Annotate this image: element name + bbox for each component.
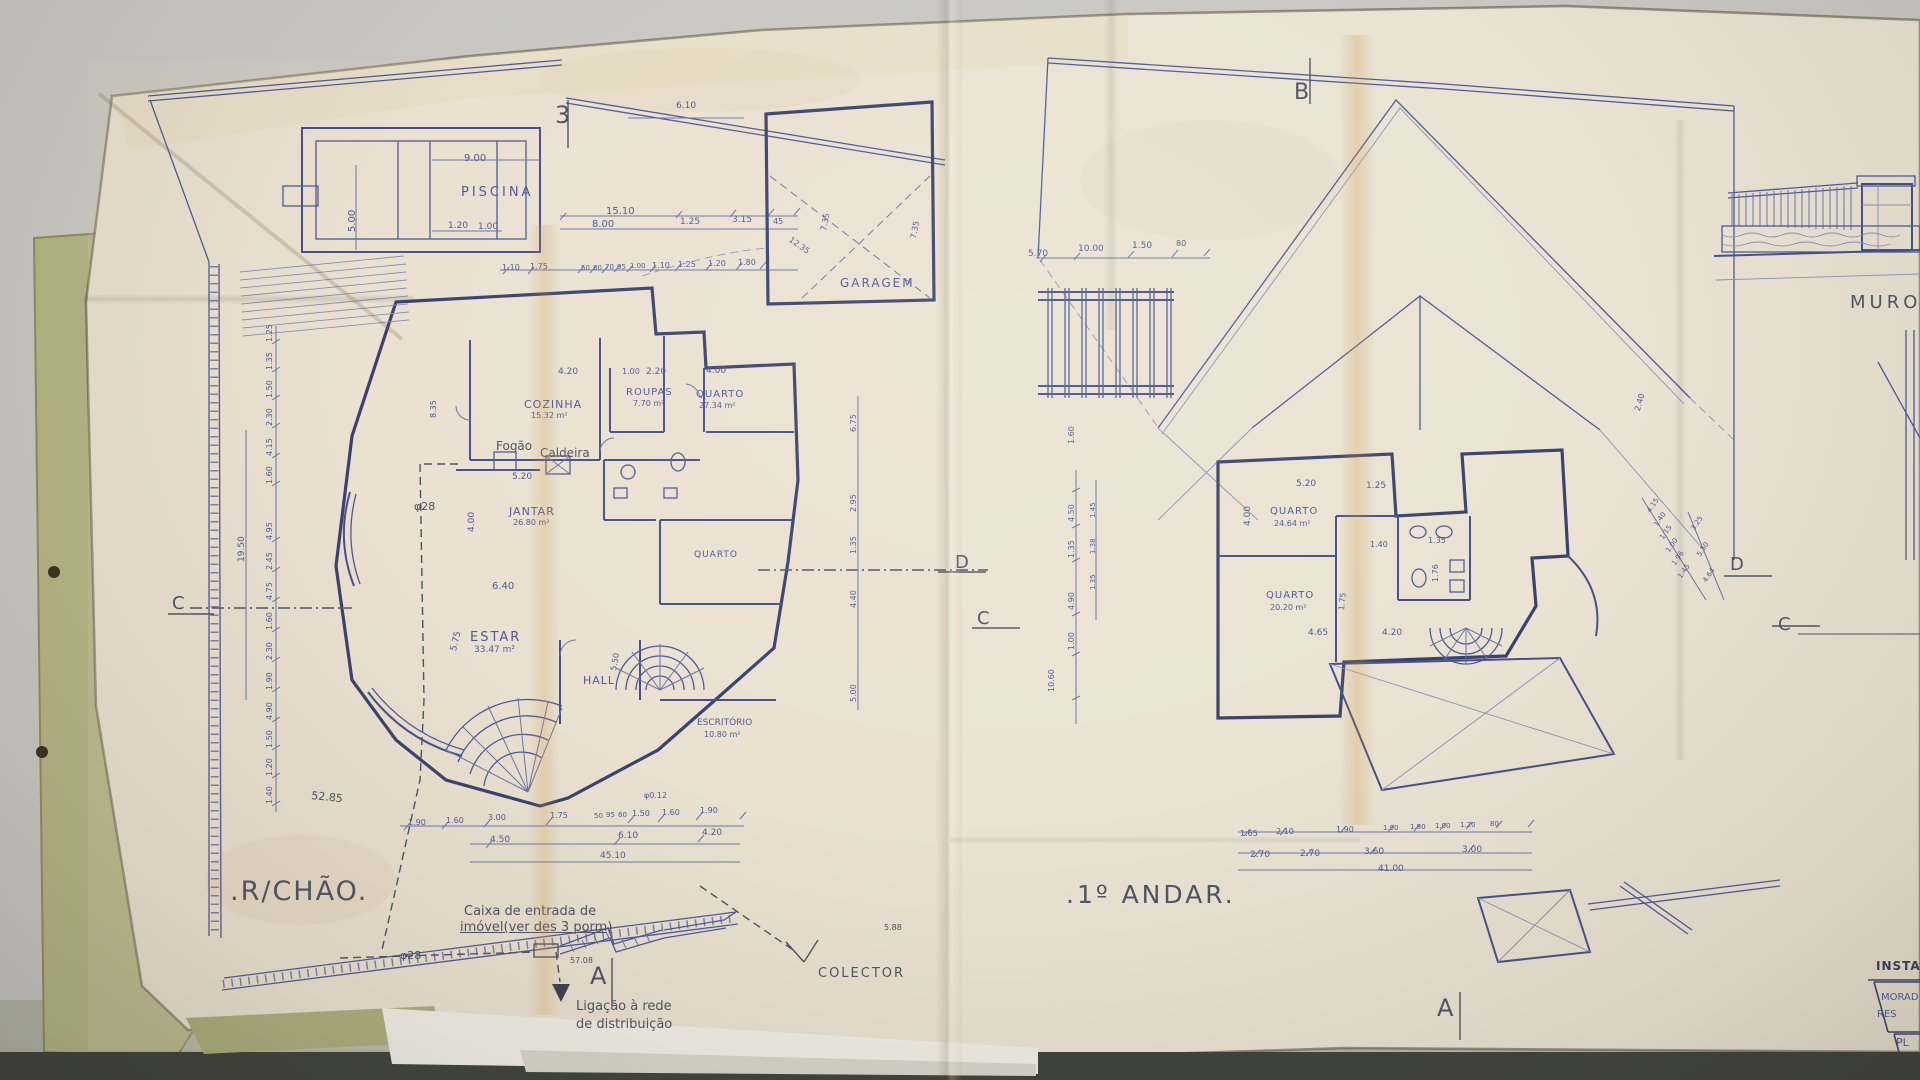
dimension-label: 1.40 [1370, 541, 1388, 549]
dimension-label: 1.00 [1435, 823, 1451, 830]
dimension-label: 1.00 [622, 368, 640, 376]
dimension-label: 60 [618, 812, 627, 819]
room-area: 20.20 m² [1270, 604, 1306, 612]
dimension-label: 4.95 [266, 522, 274, 540]
dimension-label: 1.25 [266, 324, 274, 342]
dimension-label: 1.75 [530, 263, 548, 271]
dimension-label: 1.00 [478, 223, 498, 232]
dimension-label: 2.30 [266, 642, 274, 660]
dimension-label: 1.00 [630, 263, 646, 270]
dimension-label: 80 [593, 265, 602, 272]
piscina-label: PISCINA [461, 186, 533, 199]
room-area: 26.80 m² [513, 519, 549, 527]
dimension-label: 41.00 [1378, 865, 1404, 874]
dimension-label: 4.50 [1068, 504, 1076, 522]
dimension-label: 10.00 [1078, 245, 1104, 254]
phi28-label: φ28 [400, 950, 421, 961]
room-area: 33.47 m² [474, 646, 515, 655]
dimension-label: 7.35 [820, 213, 832, 232]
dimension-label: 80 [1176, 240, 1186, 248]
dimension-label: 1.90 [408, 819, 426, 827]
quarto-label: QUARTO [1266, 591, 1314, 601]
dimension-label: 1.00 [1068, 632, 1076, 650]
colector-label: COLECTOR [818, 967, 905, 980]
dimension-label: 15.10 [606, 207, 635, 217]
dimension-label: 1.35 [1428, 537, 1446, 545]
dimension-label: 95 [606, 812, 615, 819]
section-marker-D: D [955, 554, 969, 572]
dimension-label: 1.45 [1090, 502, 1097, 518]
escritorio-label: ESCRITÓRIO [697, 719, 752, 728]
dimension-label: 1.80 [1410, 824, 1426, 831]
dimension-label: 4.15 [266, 438, 274, 456]
dimension-label: 4.20 [702, 829, 722, 838]
dimension-label: 5.88 [884, 924, 902, 932]
dimension-label: 12.35 [787, 236, 810, 256]
fogao-label: Fogão [496, 440, 532, 452]
titleblock-row3: PL [1896, 1037, 1909, 1048]
garagem-label: GARAGEM [840, 277, 915, 289]
dimension-label: 1.25 [1366, 482, 1386, 491]
estar-label: ESTAR [470, 631, 521, 644]
dimension-label: 95 [617, 264, 626, 271]
dimension-label: 1.35 [266, 352, 274, 370]
room-area: 24.64 m² [1274, 520, 1310, 528]
dimension-label: 1.75 [550, 812, 568, 820]
dimension-label: 3.60 [1364, 848, 1384, 857]
dimension-label: 1.35 [850, 536, 858, 554]
dimension-label: 50 [594, 813, 603, 820]
dimension-label: 4.40 [850, 590, 858, 608]
ligacao-note-line2: de distribuição [576, 1018, 672, 1031]
dimension-label: 10.60 [1048, 669, 1056, 692]
section-marker-A: A [590, 964, 606, 988]
dimension-label: 6.10 [676, 102, 696, 111]
quarto-label: QUARTO [696, 390, 744, 400]
dimension-label: 1.20 [1460, 822, 1476, 829]
phi28-label: φ28 [414, 501, 435, 512]
section-marker-3: 3 [555, 103, 570, 127]
section-marker-B: B [1294, 82, 1309, 104]
dimension-label: 1.76 [1432, 564, 1440, 582]
dimension-label: 1.35 [1068, 540, 1076, 558]
dimension-label: 1.90 [1383, 825, 1399, 832]
dimension-label: 1.50 [266, 380, 274, 398]
room-area: 10.80 m² [704, 731, 740, 739]
dimension-label: 4.20 [558, 368, 578, 377]
dimension-label: 1.90 [266, 672, 274, 690]
dimension-label: 1.10 [502, 264, 520, 272]
dimension-label: 4.50 [490, 836, 510, 845]
dimension-label: 1.20 [266, 758, 274, 776]
dimension-label: 5.00 [850, 684, 858, 702]
section-marker-C: C [172, 595, 185, 613]
dimension-label: 2.20 [646, 368, 666, 377]
dimension-label: 1.10 [652, 262, 670, 270]
dimension-label: 1.50 [266, 730, 274, 748]
caldeira-label: Caldeira [540, 447, 590, 459]
dimension-label: 1.60 [662, 809, 680, 817]
dimension-label: 1.25 [678, 261, 696, 269]
ligacao-note-line1: Ligação à rede [576, 1000, 672, 1013]
dimension-label: 1.65 [1240, 830, 1258, 838]
dimension-label: 1.60 [266, 612, 274, 630]
quarto2-label: QUARTO [694, 551, 738, 560]
section-marker-C: C [1778, 616, 1791, 634]
quarto-label: QUARTO [1270, 507, 1318, 517]
section-marker-A: A [1437, 996, 1453, 1020]
jantar-label: JANTAR [509, 506, 555, 517]
dimension-label: 2.70 [1250, 851, 1270, 860]
section-marker-C: C [977, 610, 990, 628]
dimension-label: 5.50 [1696, 541, 1711, 558]
dimension-label: 19.50 [238, 536, 247, 562]
cozinha-label: COZINHA [524, 399, 582, 410]
dimension-label: 1.60 [266, 466, 274, 484]
dimension-label: 50 [581, 265, 590, 272]
dimension-label: 8.00 [592, 220, 614, 230]
dimension-label: 2.95 [850, 494, 858, 512]
dimension-label: 8.35 [430, 400, 438, 418]
caixa-note-line1: Caixa de entrada de [464, 905, 596, 918]
dimension-label: 4.00 [706, 367, 726, 376]
dimension-label: 2.10 [1276, 828, 1294, 836]
dimension-label: 1.50 [632, 810, 650, 818]
hall-label: HALL [583, 675, 615, 686]
dimension-label: 5.50 [610, 652, 621, 671]
caixa-note-line2: imóvel(ver des 3 porm) [460, 921, 612, 934]
dimension-label: 80 [1490, 821, 1499, 828]
dimension-label: 3.15 [732, 216, 752, 225]
dimension-label: 4.20 [1382, 629, 1402, 638]
dimension-label: 1.60 [446, 817, 464, 825]
dimension-label: 2.45 [266, 552, 274, 570]
dimension-label: 3.00 [1462, 846, 1482, 855]
dimension-label: 2.40 [1634, 393, 1646, 412]
roupas-label: ROUPAS [626, 388, 673, 398]
annotation-layer: .R/CHÃO. .1º ANDAR. 3PISCINA9.005.001.20… [0, 0, 1920, 1080]
dimension-label: 1.80 [738, 259, 756, 267]
dimension-label: 70 [605, 264, 614, 271]
first-floor-title: .1º ANDAR. [1066, 882, 1236, 907]
room-area: 7.70 m² [633, 400, 664, 408]
dimension-label: 6.40 [492, 582, 514, 592]
room-area: 27.34 m² [699, 402, 735, 410]
dimension-label: φ0.12 [644, 792, 667, 800]
muro-label: MURO [1850, 294, 1920, 312]
dimension-label: 1.38 [1090, 538, 1097, 554]
titleblock-row1: MORAD [1881, 993, 1919, 1003]
dimension-label: 52.85 [311, 790, 343, 804]
titleblock-row2: RES [1877, 1010, 1897, 1020]
dimension-label: 5.20 [512, 473, 532, 482]
photo-of-blueprint: { "palette":{"desk":"#c9c8c3","desk_low"… [0, 0, 1920, 1080]
dimension-label: 4.15 [1646, 497, 1661, 514]
dimension-label: 4.65 [1308, 629, 1328, 638]
dimension-label: 1.35 [1090, 574, 1097, 590]
dimension-label: 1.75 [1338, 592, 1348, 611]
dimension-label: 3.00 [488, 814, 506, 822]
dimension-label: 4.00 [468, 512, 477, 532]
dimension-label: 1.50 [1132, 242, 1152, 251]
dimension-label: 5.70 [1028, 250, 1048, 259]
dimension-label: 9.00 [464, 154, 486, 164]
dimension-label: 2.70 [1300, 850, 1320, 859]
dimension-label: 4.90 [1068, 592, 1076, 610]
dimension-label: 6.75 [850, 414, 858, 432]
dimension-label: 3.25 [1690, 515, 1705, 532]
dimension-label: 4.64 [1702, 567, 1717, 584]
dimension-label: 45.10 [600, 852, 626, 861]
ground-floor-title: .R/CHÃO. [230, 878, 368, 905]
dimension-label: 4.90 [266, 702, 274, 720]
section-marker-D: D [1730, 556, 1744, 574]
dimension-label: 2.30 [266, 408, 274, 426]
dimension-label: 5.75 [450, 631, 464, 653]
titleblock-heading: INSTAL [1876, 960, 1920, 972]
dimension-label: 1.20 [448, 222, 468, 231]
dimension-label: 1.60 [1068, 426, 1076, 444]
dimension-label: 5.20 [1296, 480, 1316, 489]
dimension-label: 6.10 [618, 832, 638, 841]
dimension-label: 5.00 [348, 210, 358, 232]
dimension-label: 4.00 [1244, 506, 1253, 526]
room-area: 15.32 m² [531, 412, 567, 420]
dimension-label: 1.20 [708, 260, 726, 268]
dimension-label: 7.35 [910, 220, 921, 239]
dimension-label: 1.90 [1336, 826, 1354, 834]
dimension-label: 4.75 [266, 582, 274, 600]
dimension-label: 1.45 [1677, 563, 1692, 580]
dimension-label: 45 [773, 218, 783, 226]
dimension-label: 1.90 [700, 807, 718, 815]
dimension-label: 1.25 [680, 218, 700, 227]
dimension-label: 1.40 [266, 786, 274, 804]
